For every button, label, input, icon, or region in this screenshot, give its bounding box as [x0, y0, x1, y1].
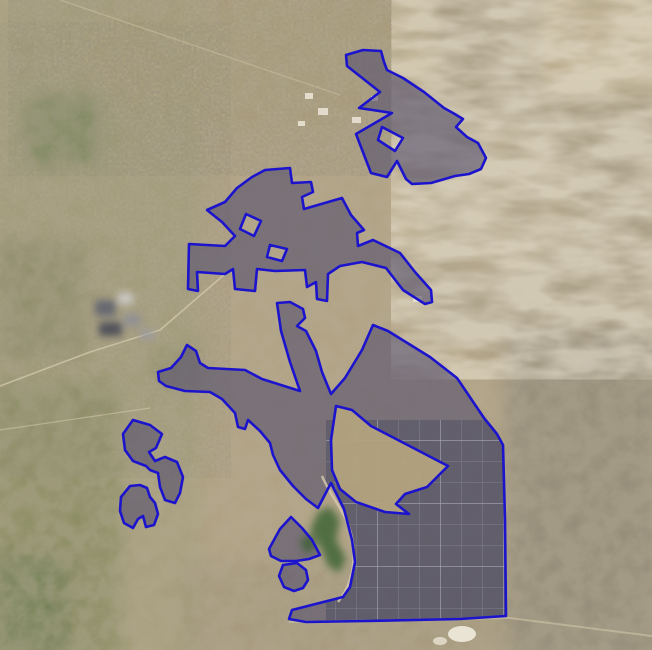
- building-speck-3: [352, 117, 361, 123]
- urban-building-3: [124, 314, 141, 326]
- satellite-map-view[interactable]: [0, 0, 652, 650]
- building-speck-1: [305, 93, 313, 99]
- white-patch-south-2: [433, 637, 447, 645]
- building-speck-2: [318, 108, 328, 115]
- white-patch-south: [448, 626, 476, 642]
- urban-building-4: [99, 322, 122, 336]
- building-speck-5: [298, 121, 305, 126]
- urban-building-5: [140, 330, 154, 339]
- satellite-map-canvas[interactable]: [0, 0, 652, 650]
- urban-building-1: [118, 293, 133, 304]
- urban-building-2: [95, 300, 116, 316]
